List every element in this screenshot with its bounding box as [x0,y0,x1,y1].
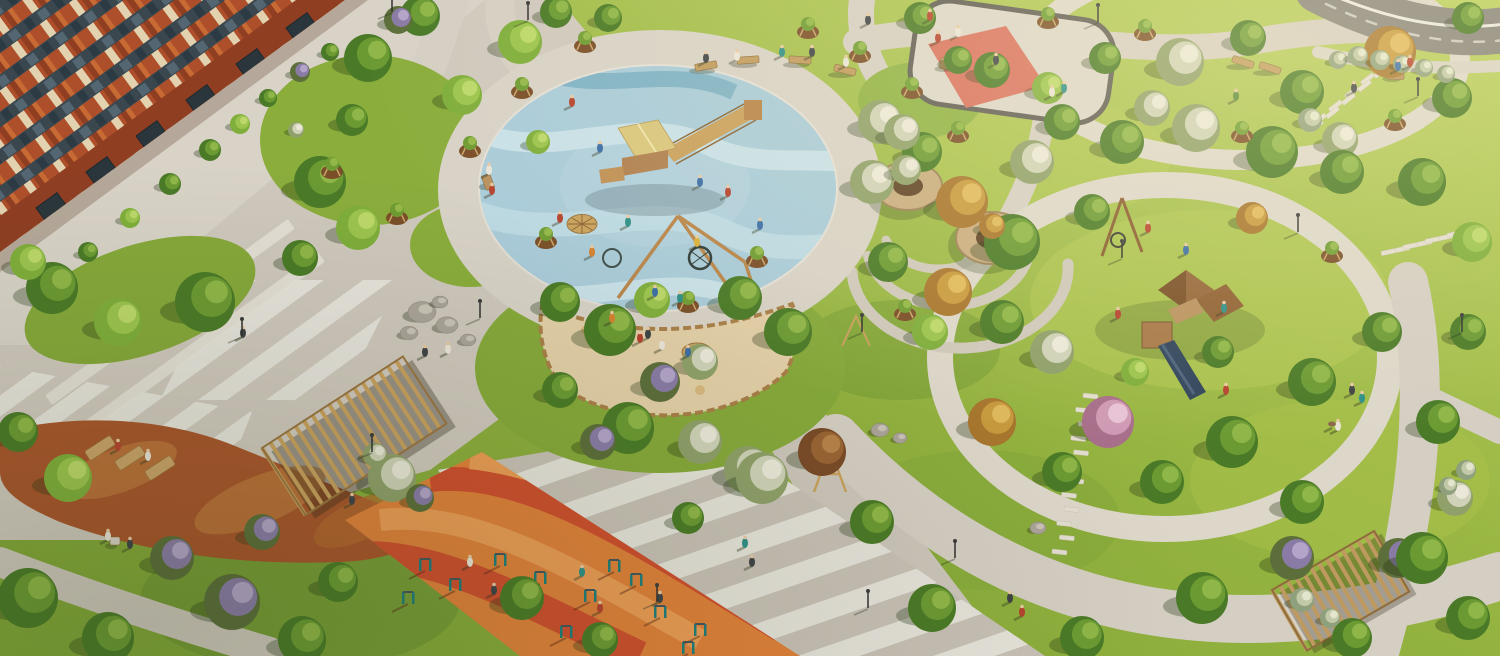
aerial-park-rendering [0,0,1500,656]
park-scene [0,0,1500,656]
vignette-overlay [0,0,1500,656]
